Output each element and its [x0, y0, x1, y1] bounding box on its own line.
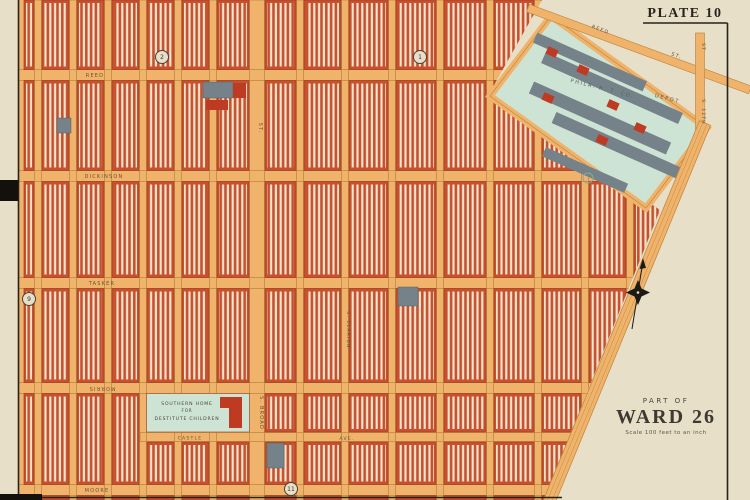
southern-home-label-3: DESTITUTE CHILDREN: [155, 416, 220, 422]
ward-name: WARD 26: [616, 406, 716, 428]
street-label-reed: REED: [86, 73, 104, 79]
southern-home-label-2: FOR: [181, 408, 192, 413]
plate-ref-number: 1: [418, 54, 422, 61]
public-building: [203, 82, 233, 98]
red-building: [206, 100, 228, 110]
plate-ref-number: 2: [160, 54, 164, 61]
red-building: [233, 83, 246, 98]
southern-home-label-1: SOUTHERN HOME: [161, 401, 212, 407]
ward-scale: Scale 100 feet to an inch: [625, 430, 706, 436]
atlas-plate: SOUTHERN HOMEFORDESTITUTE CHILDRENPHILA.…: [0, 0, 750, 500]
plate-title: PLATE 10: [647, 6, 722, 21]
street-label-morris: MORRIS: [88, 385, 115, 391]
ward-map-svg: SOUTHERN HOMEFORDESTITUTE CHILDRENPHILA.…: [0, 0, 750, 500]
binding-tab: [0, 180, 18, 201]
street-label-broad: S. BROAD: [258, 396, 264, 430]
plate-ref-number: 11: [287, 486, 295, 493]
street-label-castle: CASTLE: [178, 435, 203, 441]
ward-part-of: PART OF: [643, 397, 689, 405]
public-building: [398, 287, 418, 306]
public-building: [267, 443, 284, 468]
street-label-moore: MOORE: [85, 488, 110, 494]
plate-ref-11: 11: [285, 483, 298, 496]
street-label-12th-st: ST: [700, 43, 706, 51]
plate-ref-number: 9: [27, 296, 31, 303]
plate-ref-2: 2: [156, 51, 169, 64]
street-label-clarion: S. CLARION: [345, 311, 351, 348]
street-label-tasker: TASKER: [88, 281, 115, 287]
street-label-broad-st: ST.: [257, 123, 263, 134]
public-building: [57, 118, 71, 133]
street-label-12th: S. 12TH: [700, 99, 706, 125]
plate-ref-1: 1: [414, 51, 427, 64]
street-label-dickinson: DICKINSON: [85, 174, 124, 180]
plate-ref-9: 9: [23, 293, 36, 306]
southern-home-block: SOUTHERN HOMEFORDESTITUTE CHILDREN: [147, 394, 250, 433]
street-label-castle-ave: AVE.: [339, 436, 354, 442]
